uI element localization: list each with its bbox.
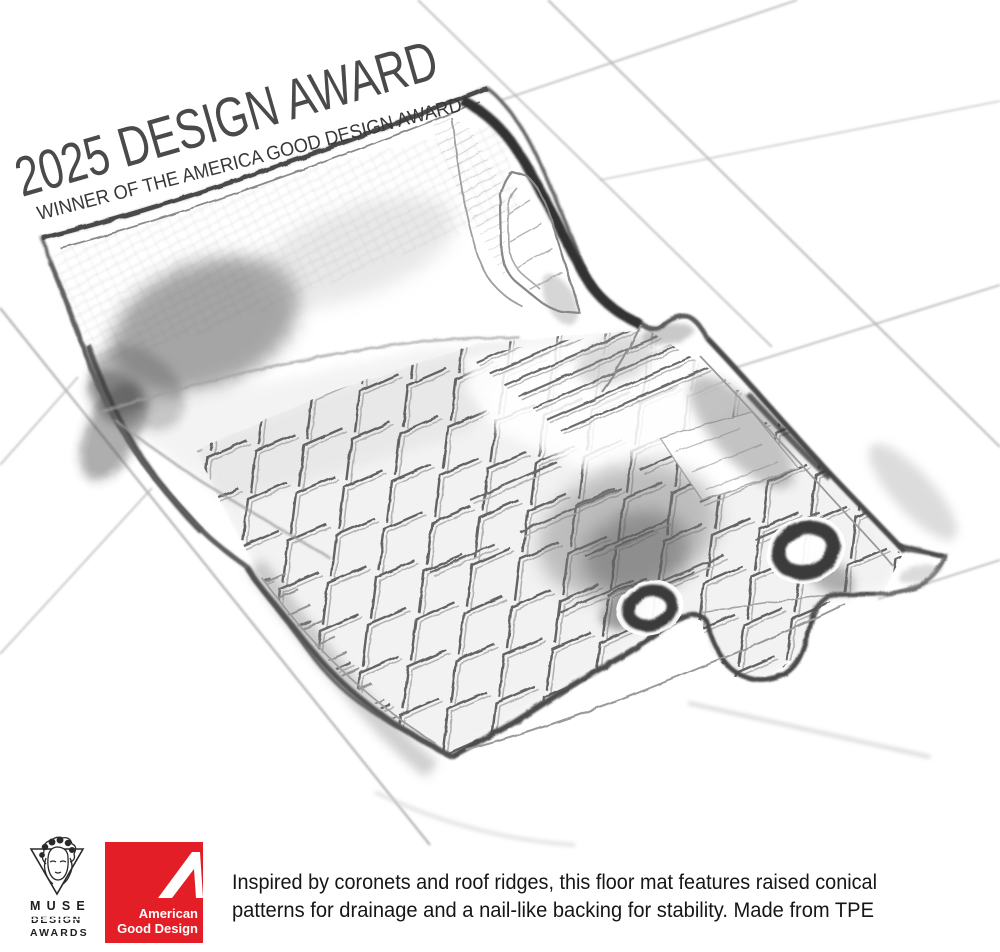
svg-text:Inspired by coronets and roof: Inspired by coronets and roof ridges, th… <box>232 871 877 894</box>
svg-text:MUSE: MUSE <box>30 899 91 913</box>
svg-text:Good Design: Good Design <box>117 921 198 936</box>
svg-text:American: American <box>139 906 198 921</box>
svg-text:AWARDS: AWARDS <box>30 927 89 939</box>
svg-text:patterns for drainage and a na: patterns for drainage and a nail-like ba… <box>232 899 874 922</box>
